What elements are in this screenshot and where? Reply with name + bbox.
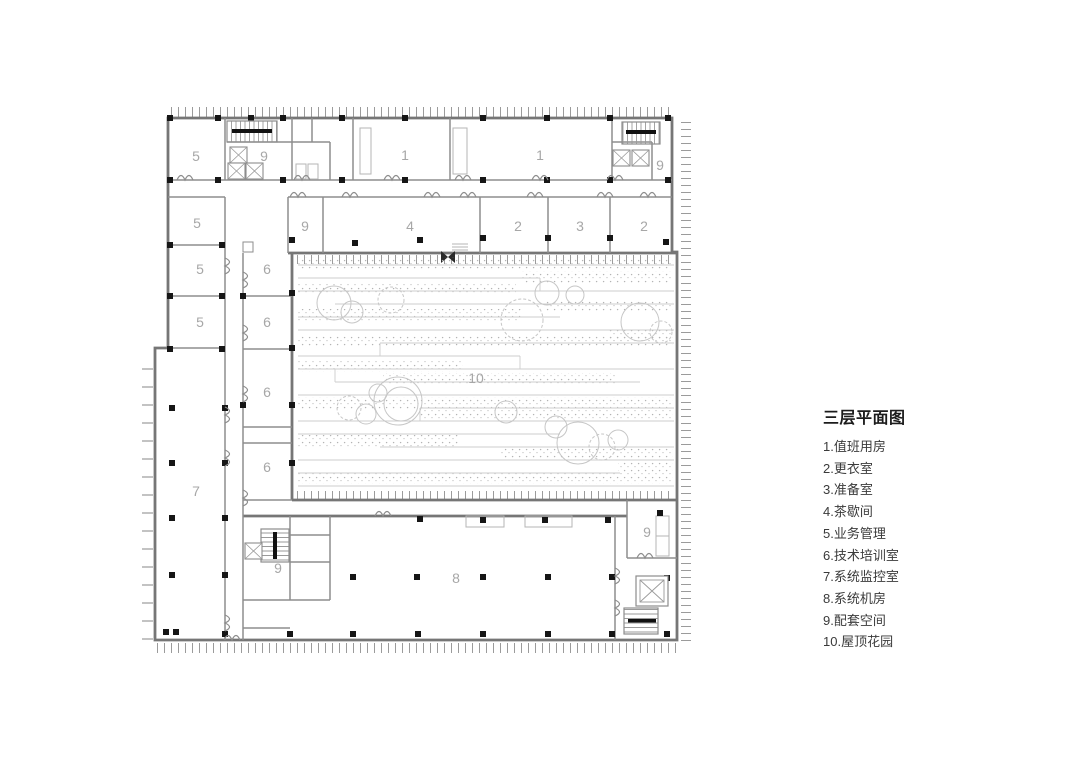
- room-label: 9: [301, 218, 309, 234]
- room-label: 6: [263, 384, 271, 400]
- elevator-large: [636, 576, 668, 606]
- equipment-unit: [525, 516, 572, 527]
- legend-title: 三层平面图: [823, 404, 1053, 428]
- room-label: 5: [196, 314, 204, 330]
- legend-item: 10.屋顶花园: [823, 631, 1053, 653]
- legend-item: 8.系统机房: [823, 588, 1053, 610]
- legend-list: 1.值班用房 2.更衣室 3.准备室 4.茶歇间 5.业务管理 6.技术培训室 …: [823, 436, 1053, 653]
- service-stair-marks: [452, 244, 468, 250]
- room-label: 6: [263, 314, 271, 330]
- elevator: [245, 543, 262, 559]
- legend: 三层平面图 1.值班用房 2.更衣室 3.准备室 4.茶歇间 5.业务管理 6.…: [823, 404, 1053, 653]
- legend-item: 9.配套空间: [823, 610, 1053, 632]
- room-label: 3: [576, 218, 584, 234]
- elevator: [230, 147, 247, 163]
- room-label: 5: [192, 148, 200, 164]
- room-label: 4: [406, 218, 414, 234]
- legend-item: 2.更衣室: [823, 458, 1053, 480]
- stair-bottom-left: [261, 529, 289, 562]
- room-label: 9: [643, 524, 651, 540]
- room-label: 5: [193, 215, 201, 231]
- elevator: [246, 163, 263, 179]
- room-label: 9: [260, 148, 268, 164]
- room-label: 9: [656, 157, 664, 173]
- room-label: 1: [401, 147, 409, 163]
- room-label: 2: [514, 218, 522, 234]
- floor-plan-page: 5 9 1 1 9 5 9 4 2 3 2 5 5 6 6 6 6 7 10 9…: [0, 0, 1080, 764]
- roof-garden: [298, 257, 674, 486]
- room-label: 6: [263, 261, 271, 277]
- elevator: [228, 163, 245, 179]
- table-room1-left: [360, 128, 371, 174]
- room-label: 2: [640, 218, 648, 234]
- elevator: [632, 150, 649, 166]
- stair-top-right: [622, 122, 660, 144]
- elevator: [613, 150, 630, 166]
- legend-item: 1.值班用房: [823, 436, 1053, 458]
- room-label: 9: [274, 560, 282, 576]
- legend-item: 5.业务管理: [823, 523, 1053, 545]
- room-label: 5: [196, 261, 204, 277]
- table-room1-right: [453, 128, 467, 174]
- door-jamb: [243, 242, 253, 252]
- room-label: 10: [468, 370, 484, 386]
- room-label: 1: [536, 147, 544, 163]
- stair-top-left: [227, 121, 277, 142]
- legend-item: 6.技术培训室: [823, 545, 1053, 567]
- stair-bottom-right: [624, 608, 658, 634]
- toilet-stall: [308, 164, 318, 179]
- legend-item: 3.准备室: [823, 479, 1053, 501]
- legend-item: 4.茶歇间: [823, 501, 1053, 523]
- legend-item: 7.系统监控室: [823, 566, 1053, 588]
- room-label: 8: [452, 570, 460, 586]
- room-label: 6: [263, 459, 271, 475]
- room-label: 7: [192, 483, 200, 499]
